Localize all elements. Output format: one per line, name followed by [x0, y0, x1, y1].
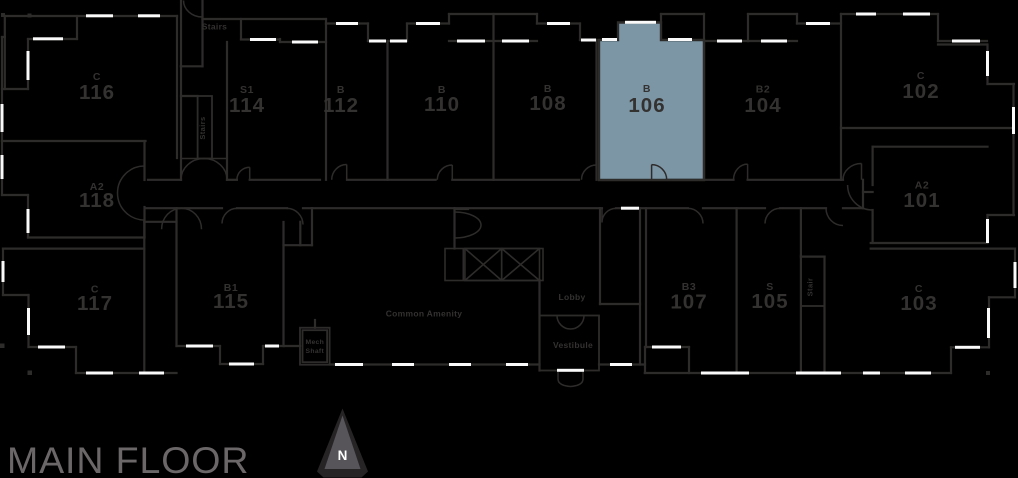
- svg-text:107: 107: [670, 291, 707, 314]
- svg-text:Common Amenity: Common Amenity: [386, 309, 463, 319]
- svg-text:106: 106: [628, 94, 665, 117]
- svg-text:112: 112: [323, 94, 359, 117]
- svg-text:Vestibule: Vestibule: [553, 340, 593, 350]
- svg-text:117: 117: [77, 292, 113, 315]
- svg-text:110: 110: [424, 93, 460, 116]
- svg-text:115: 115: [213, 290, 249, 313]
- svg-text:Mech: Mech: [306, 339, 325, 346]
- svg-text:Stairs: Stairs: [202, 22, 227, 32]
- svg-text:B: B: [643, 83, 651, 95]
- svg-text:Lobby: Lobby: [559, 292, 586, 302]
- svg-text:MAIN FLOOR: MAIN FLOOR: [7, 439, 249, 478]
- svg-text:Stairs: Stairs: [198, 116, 207, 139]
- svg-text:105: 105: [751, 290, 788, 313]
- svg-text:104: 104: [744, 94, 781, 117]
- svg-text:103: 103: [900, 292, 937, 315]
- svg-text:116: 116: [79, 81, 115, 104]
- svg-text:101: 101: [903, 189, 940, 212]
- svg-text:Shaft: Shaft: [306, 348, 325, 355]
- svg-text:118: 118: [79, 189, 115, 212]
- svg-text:N: N: [338, 448, 348, 463]
- svg-text:Stair: Stair: [806, 278, 815, 297]
- svg-text:102: 102: [902, 80, 939, 103]
- svg-text:108: 108: [529, 92, 566, 115]
- svg-text:114: 114: [229, 94, 265, 117]
